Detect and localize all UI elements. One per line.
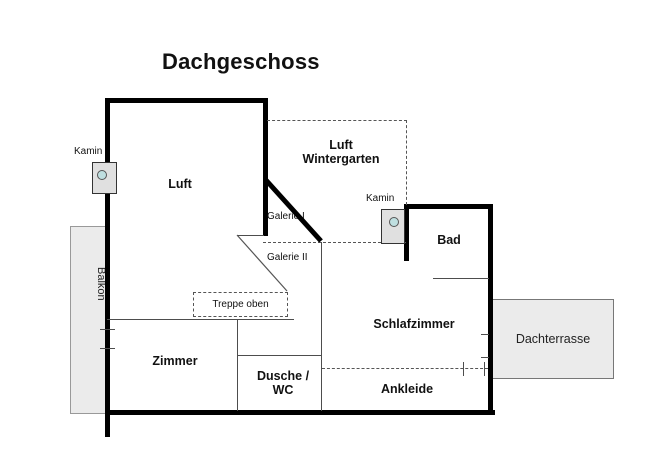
room-label-zimmer: Zimmer xyxy=(125,354,225,368)
dash-wintergarten-right xyxy=(406,120,407,205)
room-label-schlafzimmer: Schlafzimmer xyxy=(344,317,484,331)
room-label-luft-wintergarten: Luft Wintergarten xyxy=(281,138,401,167)
treppe-oben-label: Treppe oben xyxy=(212,299,268,310)
line-bad-bottom xyxy=(433,278,489,279)
tick-ankleide-opening-left xyxy=(463,362,464,376)
line-galerie-notch xyxy=(237,235,264,236)
floorplan-canvas: Dachgeschoss Balkon Dachterrasse Treppe … xyxy=(0,0,650,460)
wall-right xyxy=(488,204,493,415)
kamin-left-symbol xyxy=(92,162,117,194)
wall-luft-top xyxy=(105,98,268,103)
wall-left xyxy=(105,98,110,437)
room-label-luft: Luft xyxy=(150,177,210,191)
line-zimmer-top xyxy=(107,319,294,320)
wall-bad-top xyxy=(404,204,493,209)
tick-terrasse-door-top xyxy=(481,334,489,335)
line-dusche-top xyxy=(237,355,322,356)
kamin-right-label: Kamin xyxy=(366,193,394,205)
balkon-area: Balkon xyxy=(70,226,108,414)
tick-balkon-door-top xyxy=(100,329,115,330)
room-label-ankleide: Ankleide xyxy=(347,382,467,396)
dash-wintergarten-top xyxy=(267,120,407,121)
dash-ankleide-divider xyxy=(322,368,488,369)
room-label-dusche-wc: Dusche / WC xyxy=(233,369,333,398)
galerie-1-label: Galerie I xyxy=(267,211,305,223)
wall-galerie-diagonal xyxy=(265,179,321,241)
treppe-oben-box: Treppe oben xyxy=(193,292,288,317)
tick-terrasse-door-bottom xyxy=(481,357,489,358)
dachterrasse-label: Dachterrasse xyxy=(516,332,590,346)
kamin-right-flue-icon xyxy=(389,217,399,227)
galerie-2-label: Galerie II xyxy=(267,252,308,264)
kamin-right-symbol xyxy=(381,209,405,244)
page-title: Dachgeschoss xyxy=(162,49,320,75)
dachterrasse-area: Dachterrasse xyxy=(492,299,614,379)
room-label-bad: Bad xyxy=(419,233,479,247)
kamin-left-flue-icon xyxy=(97,170,107,180)
tick-balkon-door-bottom xyxy=(100,348,115,349)
balkon-label: Balkon xyxy=(71,267,107,301)
tick-ankleide-opening-right xyxy=(484,362,485,376)
kamin-left-label: Kamin xyxy=(74,146,102,158)
wall-bottom xyxy=(105,410,495,415)
